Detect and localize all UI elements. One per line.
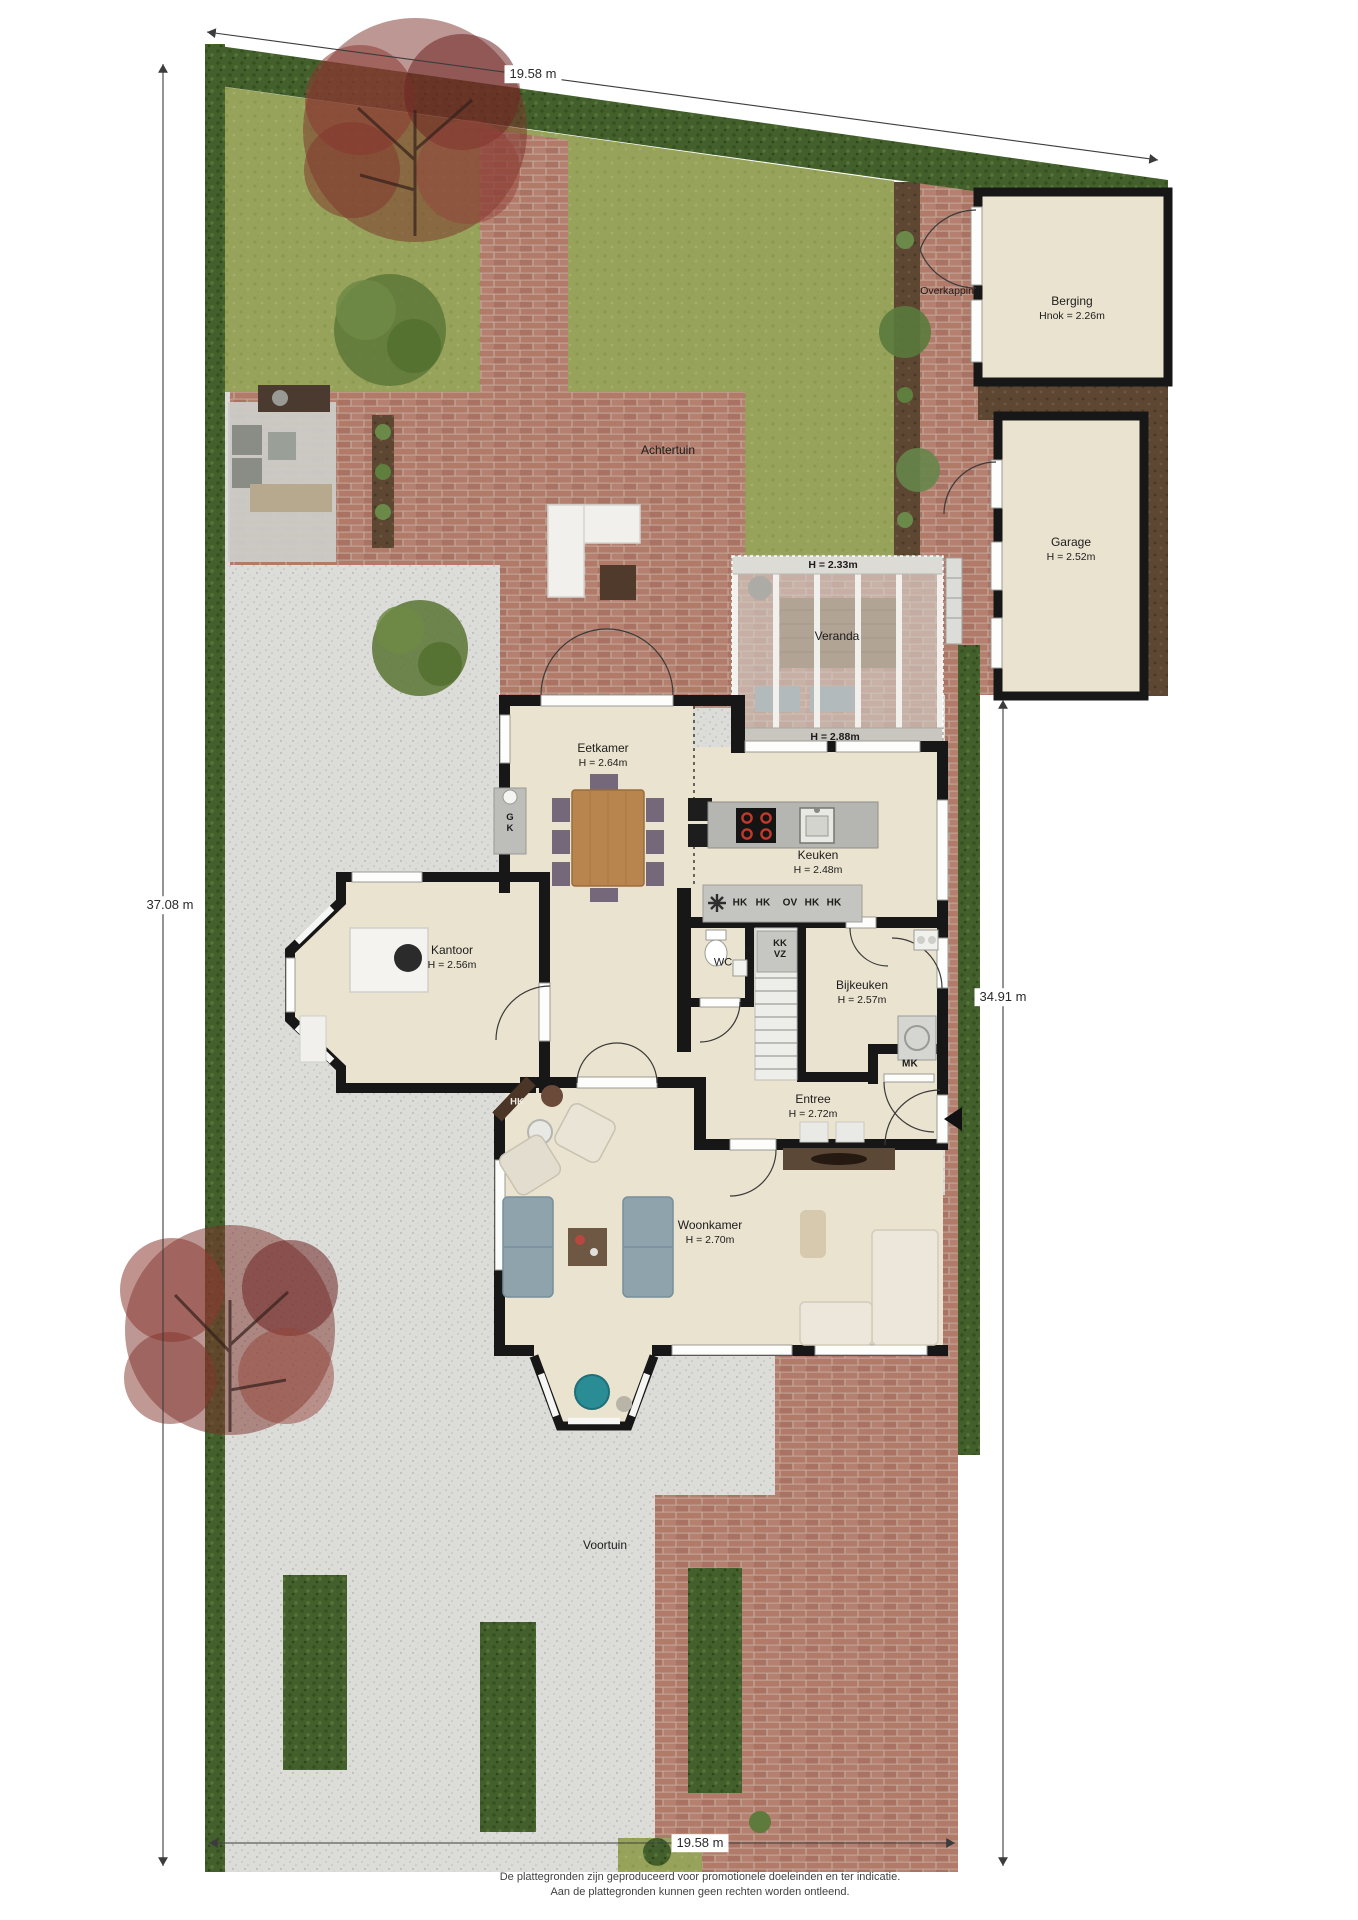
plant-icon: [375, 424, 391, 440]
sofa-cream: [800, 1302, 872, 1345]
washer-icon: [898, 1016, 936, 1060]
label-gk-counter: GK: [506, 813, 513, 835]
lounger: [250, 484, 332, 512]
bay-side-table: [616, 1396, 632, 1412]
floorplan-drawing: [0, 0, 1358, 1920]
label-closet-kkvz: KKVZ: [773, 939, 787, 961]
label-veranda: Veranda: [815, 628, 860, 644]
plant-icon: [375, 504, 391, 520]
hedge-left: [205, 44, 225, 1872]
bush-bottom: [643, 1838, 671, 1866]
dim-top-label: 19.58 m: [505, 65, 562, 83]
green-bush-terrace: [372, 600, 468, 696]
bbq: [258, 385, 330, 412]
hedge-right: [958, 645, 980, 1455]
label-overkapping: Overkapping: [920, 284, 980, 298]
plant-icon: [375, 464, 391, 480]
hedge-front-3: [688, 1568, 742, 1793]
label-bijkeuken: BijkeukenH = 2.57m: [836, 977, 888, 1007]
dim-right-label: 34.91 m: [975, 988, 1032, 1006]
label-closet-k: K: [745, 946, 752, 957]
label-unit-ov: OV: [783, 896, 798, 910]
green-tree: [334, 274, 446, 386]
label-unit-hk2: HK: [756, 896, 771, 910]
pouf: [800, 1210, 826, 1258]
garden-gate: [946, 558, 962, 644]
corner-sofa-white: [548, 505, 584, 597]
label-keuken: KeukenH = 2.48m: [794, 847, 843, 877]
label-berging: BergingHnok = 2.26m: [1039, 293, 1105, 323]
label-woonkamer: WoonkamerH = 2.70m: [678, 1217, 742, 1247]
disclaimer: De plattegronden zijn geproduceerd voor …: [500, 1870, 901, 1900]
dim-left-label: 37.08 m: [142, 896, 199, 914]
label-voortuin: Voortuin: [583, 1537, 627, 1553]
dim-bottom-label: 19.58 m: [672, 1834, 729, 1852]
kitchen-island: [708, 802, 878, 848]
label-entree: EntreeH = 2.72m: [789, 1091, 838, 1121]
label-achtertuin: Achtertuin: [641, 442, 695, 458]
red-tree-bottom: [120, 1225, 338, 1435]
hedge-front-1: [283, 1575, 347, 1770]
label-unit-hk4: HK: [827, 896, 842, 910]
office-chair: [394, 944, 422, 972]
label-fireplace-hk: HK: [510, 1098, 524, 1109]
label-mk: MK: [902, 1057, 918, 1071]
terrace-table: [600, 565, 636, 600]
label-eetkamer: EetkamerH = 2.64m: [577, 740, 628, 770]
label-unit-hk1: HK: [733, 896, 748, 910]
coffee-table: [568, 1228, 607, 1266]
veranda-structure: [732, 556, 943, 745]
pouf-round: [541, 1085, 563, 1107]
sofa-cream: [872, 1230, 938, 1345]
label-unit-hk3: HK: [805, 896, 820, 910]
label-garage: GarageH = 2.52m: [1047, 534, 1096, 564]
label-wc: WC: [714, 956, 732, 971]
label-kantoor: KantoorH = 2.56m: [428, 942, 477, 972]
veranda-glass: [732, 574, 943, 728]
bush-front: [749, 1811, 771, 1833]
label-veranda-height-bottom: H = 2.88m: [810, 730, 859, 744]
hedge-front-2: [480, 1622, 536, 1832]
floorplan-page: 19.58 m 37.08 m 34.91 m 19.58 m Achtertu…: [0, 0, 1358, 1920]
label-veranda-height-top: H = 2.33m: [808, 558, 857, 572]
bay-chair-teal: [575, 1375, 609, 1409]
red-tree-top: [303, 18, 527, 242]
